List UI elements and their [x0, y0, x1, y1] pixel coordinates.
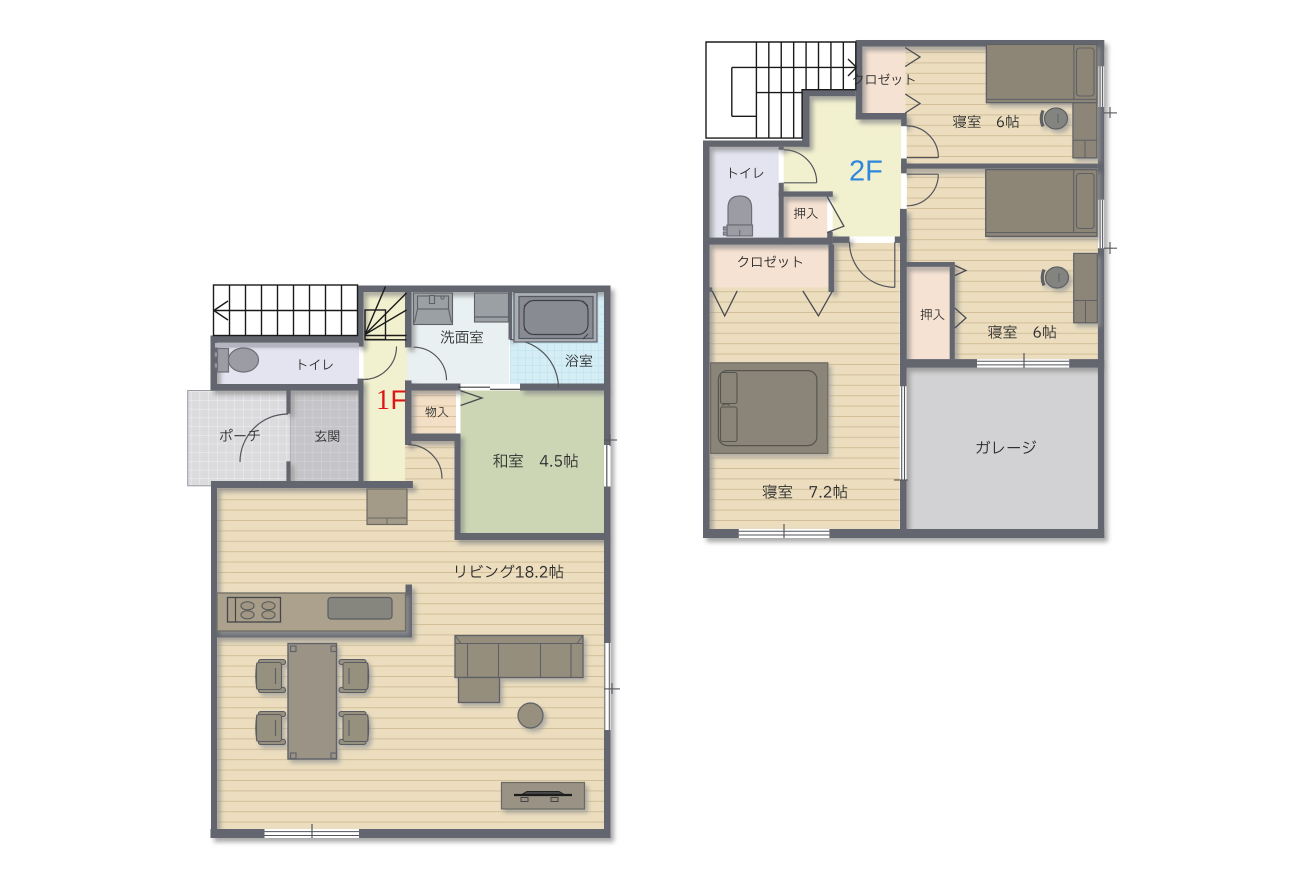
- svg-text:F: F: [391, 385, 407, 415]
- svg-text:1: 1: [376, 385, 390, 416]
- svg-text:2F: 2F: [849, 156, 883, 188]
